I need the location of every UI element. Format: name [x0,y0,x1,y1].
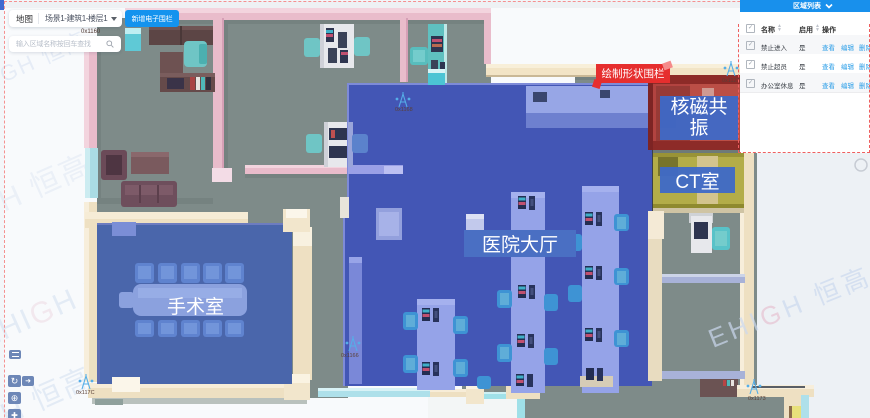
svg-text:0x1166: 0x1166 [341,353,359,359]
svg-text:0x1168: 0x1168 [395,107,413,113]
svg-text:0x117C: 0x117C [76,390,95,396]
svg-text:0x1173: 0x1173 [748,396,766,402]
svg-text:0x1127: 0x1127 [722,78,740,84]
svg-text:0x1160: 0x1160 [81,29,101,35]
